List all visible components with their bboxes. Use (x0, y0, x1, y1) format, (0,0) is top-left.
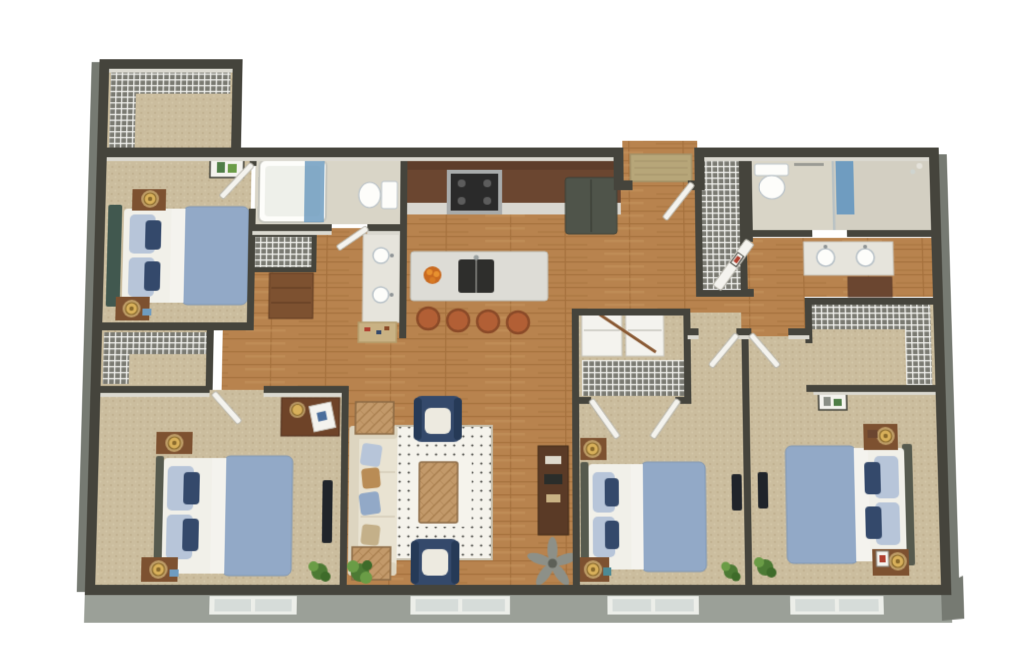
front-window (209, 596, 297, 614)
sheet-fold (170, 209, 186, 303)
front-window (790, 596, 884, 614)
table-lamp (583, 440, 601, 458)
range (447, 170, 502, 215)
faucet (390, 293, 394, 297)
refrigerator (565, 178, 617, 234)
decor-item (603, 567, 611, 575)
faucet (390, 254, 394, 258)
shower-curtain (304, 160, 325, 222)
towel-bar (794, 163, 824, 166)
accent-pillow (865, 506, 882, 538)
papers (317, 411, 328, 422)
sheet-fold (210, 458, 226, 574)
front-window (607, 596, 699, 614)
accent-pillow (864, 462, 881, 494)
scene-3d-wrapper (0, 0, 1024, 658)
barstool (417, 308, 439, 330)
end-table (355, 402, 393, 434)
accent-pillow (145, 220, 162, 249)
vanity-sink (373, 287, 389, 303)
barstool (477, 311, 499, 333)
wall-art (818, 394, 846, 410)
vanity-sink (817, 249, 835, 267)
headboard (106, 205, 123, 307)
console-decor (546, 494, 560, 502)
duvet (785, 446, 858, 563)
linen-cabinet (848, 277, 892, 297)
console-decor (544, 474, 562, 484)
throw-pillow (358, 491, 381, 516)
console-decor (545, 456, 561, 464)
hall-doormat (358, 322, 396, 342)
wire-shelf (254, 234, 314, 269)
duvet (222, 456, 293, 576)
barstool (447, 310, 469, 332)
decor-item (169, 569, 178, 576)
entry (630, 154, 691, 181)
throw-pillow (360, 524, 380, 546)
wire-shelf (110, 71, 230, 94)
framed-photo (876, 551, 889, 566)
accent-pillow (183, 472, 200, 504)
sheet-fold (631, 464, 644, 569)
throw-pillow (360, 443, 383, 468)
dresser (269, 273, 313, 318)
accent-pillow (182, 519, 199, 552)
faucet (474, 255, 479, 260)
fruit-bowl (424, 266, 442, 284)
desk (281, 398, 340, 436)
wire-shelf (904, 304, 932, 387)
floor-plan-image: 3D aerial floor plan rendering of a four… (0, 0, 1024, 658)
vanity-sink (373, 248, 389, 264)
coffee-table (419, 462, 458, 523)
media-console (538, 446, 568, 535)
tv (322, 480, 333, 543)
accent-pillow (144, 261, 161, 290)
decor-item (867, 430, 877, 438)
armchair (414, 396, 462, 442)
tv (731, 474, 742, 510)
wire-shelf (103, 332, 209, 354)
wire-shelf (582, 360, 684, 396)
front-window (410, 596, 510, 614)
duvet (181, 207, 248, 305)
floor-plan-render (0, 11, 1024, 658)
armchair (411, 539, 460, 586)
washer (582, 315, 622, 357)
kitchen-island (410, 252, 547, 301)
accent-pillow (605, 521, 619, 549)
table-lamp (584, 560, 602, 578)
tv (758, 472, 769, 508)
accent-pillow (605, 478, 619, 506)
barstool (507, 312, 529, 334)
shower-towel (835, 160, 854, 214)
throw-pillow (361, 467, 381, 489)
vanity-sink (856, 249, 874, 267)
decor-item (142, 309, 151, 316)
headboard (580, 462, 589, 571)
duvet (641, 462, 707, 571)
entry-step (622, 141, 697, 153)
